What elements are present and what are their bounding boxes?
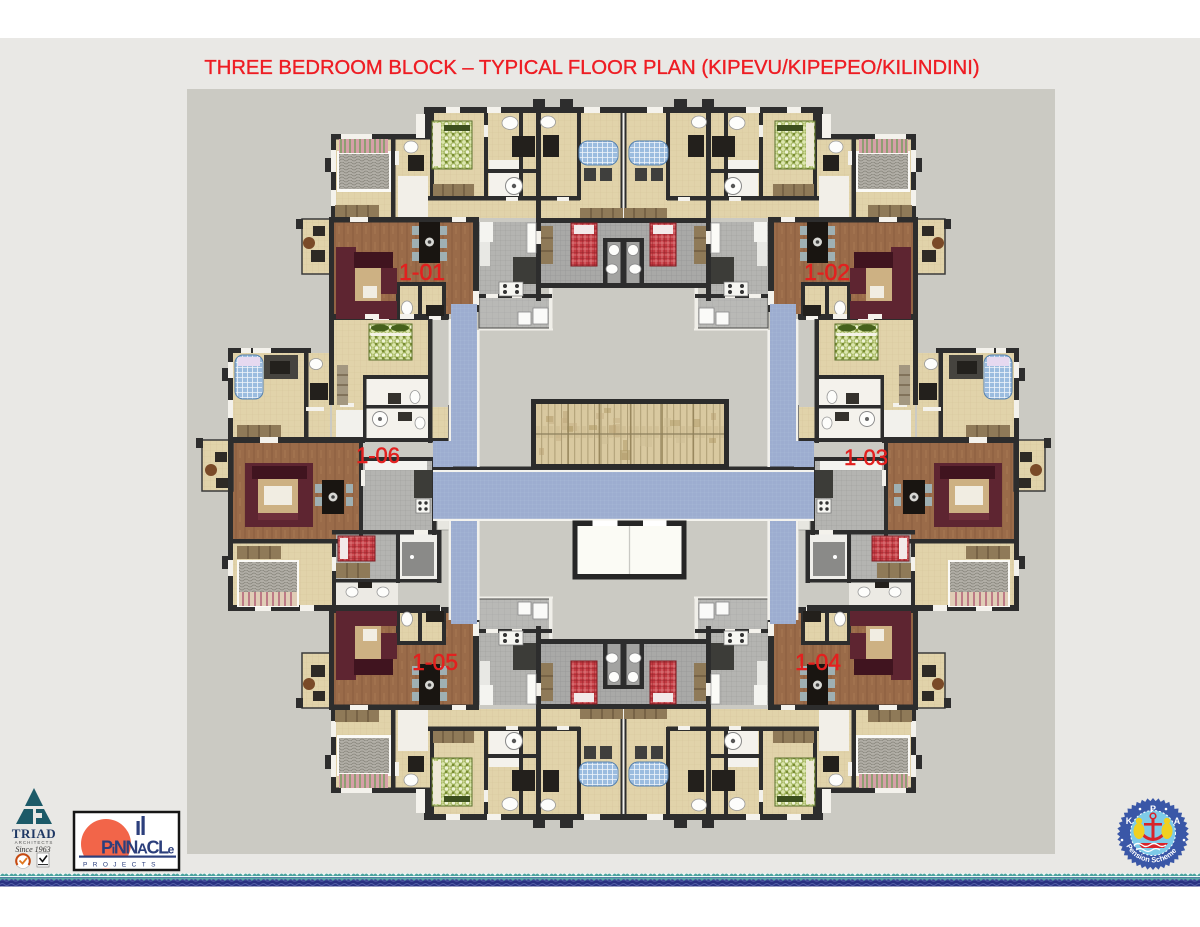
svg-text:1-06: 1-06 bbox=[356, 443, 400, 468]
svg-text:TRIAD: TRIAD bbox=[12, 826, 56, 841]
svg-text:A: A bbox=[1174, 816, 1181, 826]
svg-text:K: K bbox=[1126, 816, 1133, 826]
svg-text:1-02: 1-02 bbox=[804, 259, 850, 285]
svg-text:1-01: 1-01 bbox=[399, 259, 445, 285]
svg-text:1-05: 1-05 bbox=[412, 649, 458, 675]
svg-text:1-03: 1-03 bbox=[844, 445, 888, 470]
svg-text:PROJECTS: PROJECTS bbox=[83, 862, 161, 869]
svg-text:1-04: 1-04 bbox=[795, 649, 841, 675]
svg-text:THREE BEDROOM BLOCK – TYPICAL: THREE BEDROOM BLOCK – TYPICAL FLOOR PLAN… bbox=[204, 57, 979, 79]
